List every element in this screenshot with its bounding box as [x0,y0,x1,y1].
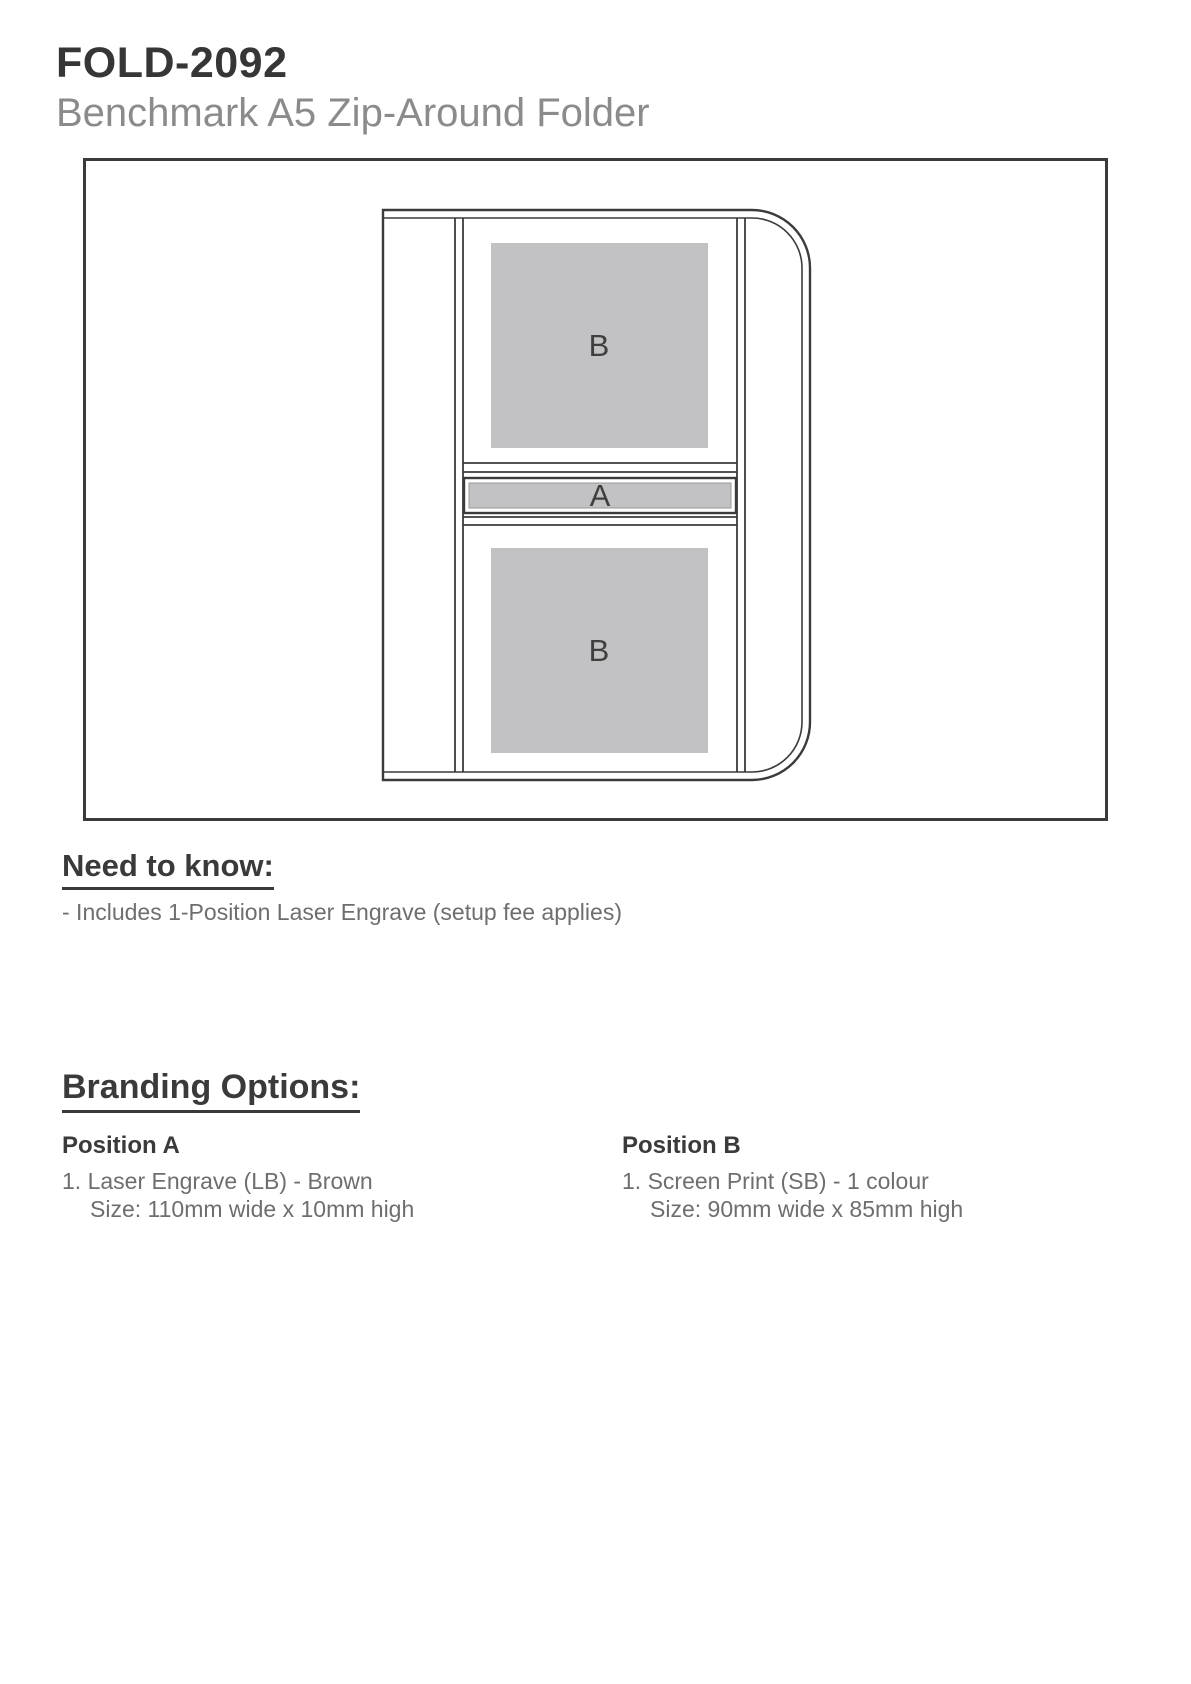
need-to-know-heading-text: Need to know: [62,848,274,890]
position-a-size: Size: 110mm wide x 10mm high [62,1195,582,1223]
position-b-title: Position B [622,1132,1142,1160]
page-header: FOLD-2092 Benchmark A5 Zip-Around Folder [56,38,650,137]
diagram-container: B A B [83,158,1108,821]
position-a-method: 1. Laser Engrave (LB) - Brown [62,1167,582,1195]
position-b-method: 1. Screen Print (SB) - 1 colour [622,1167,1142,1195]
folder-diagram: B A B [83,158,1108,821]
product-code: FOLD-2092 [56,38,650,89]
product-name: Benchmark A5 Zip-Around Folder [56,89,650,137]
branding-options-heading-text: Branding Options: [62,1068,360,1113]
need-to-know-note: - Includes 1-Position Laser Engrave (set… [62,898,622,927]
branding-column-position-a: Position A 1. Laser Engrave (LB) - Brown… [62,1132,582,1223]
branding-column-position-b: Position B 1. Screen Print (SB) - 1 colo… [622,1132,1142,1223]
position-b-size: Size: 90mm wide x 85mm high [622,1195,1142,1223]
branding-options-heading: Branding Options: [62,1068,360,1113]
label-strip-a: A [590,478,611,513]
label-top-b: B [589,328,610,363]
need-to-know-heading: Need to know: [62,848,274,890]
spec-sheet-page: { "header": { "product_code": "FOLD-2092… [0,0,1191,1684]
position-a-title: Position A [62,1132,582,1160]
label-bottom-b: B [589,633,610,668]
